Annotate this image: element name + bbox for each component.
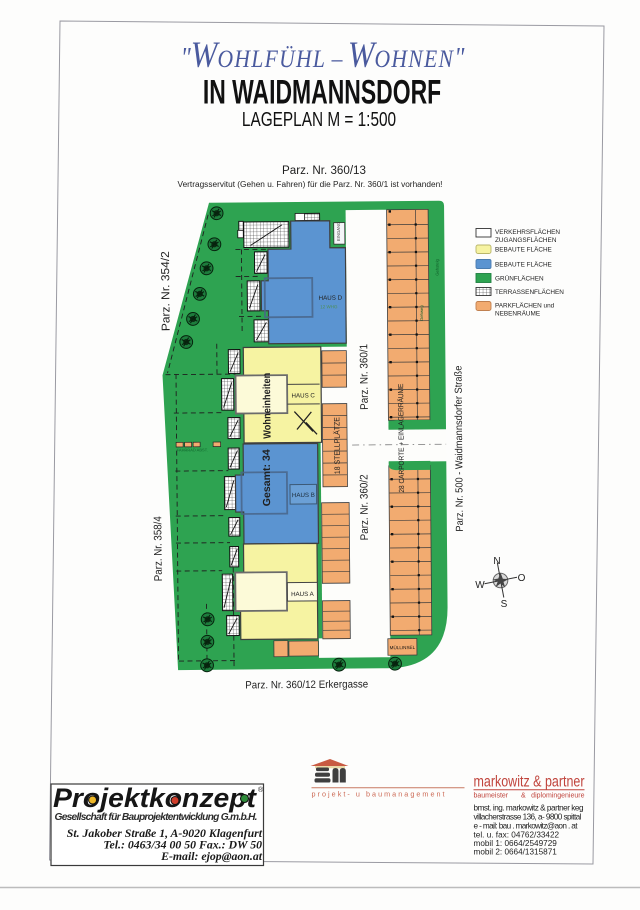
svg-text:12 WHG: 12 WHG bbox=[320, 304, 338, 309]
svg-text:Gehsteig: Gehsteig bbox=[435, 258, 440, 275]
svg-text:GRÜNFLÄCHEN: GRÜNFLÄCHEN bbox=[495, 274, 544, 282]
svg-text:N: N bbox=[493, 556, 500, 567]
svg-text:PARKFLÄCHEN und: PARKFLÄCHEN und bbox=[495, 301, 555, 309]
svg-text:bmst. ing. markowitz & partne: bmst. ing. markowitz & partner keg bbox=[474, 804, 584, 813]
svg-text:HAUS A: HAUS A bbox=[291, 591, 315, 598]
svg-text:LAGEPLAN M = 1:500: LAGEPLAN M = 1:500 bbox=[242, 108, 396, 131]
svg-text:Gesamt: 34: Gesamt: 34 bbox=[262, 449, 273, 506]
svg-text:Gehweg: Gehweg bbox=[419, 305, 424, 321]
svg-text:markowitz & partner: markowitz & partner bbox=[474, 774, 585, 791]
svg-text:28 CARPORTE + EINLAGERRÄUME: 28 CARPORTE + EINLAGERRÄUME bbox=[396, 384, 406, 493]
svg-text:&: & bbox=[521, 793, 526, 800]
svg-text:FAHRRAD ABST.: FAHRRAD ABST. bbox=[177, 447, 208, 452]
svg-text:Parz. Nr. 360/13: Parz. Nr. 360/13 bbox=[282, 165, 366, 177]
svg-text:W: W bbox=[475, 580, 485, 591]
svg-text:Parz. Nr. 358/4: Parz. Nr. 358/4 bbox=[152, 516, 165, 581]
svg-text:HAUS B: HAUS B bbox=[292, 492, 315, 499]
svg-text:IN WAIDMANNSDORF: IN WAIDMANNSDORF bbox=[203, 74, 441, 112]
svg-text:NEBENRÄUME: NEBENRÄUME bbox=[495, 309, 540, 317]
svg-text:VERKEHRSFLÄCHEN: VERKEHRSFLÄCHEN bbox=[495, 228, 560, 236]
svg-text:Parz. Nr. 500 - Waidmannsdorfe: Parz. Nr. 500 - Waidmannsdorfer Straße bbox=[453, 365, 465, 531]
svg-text:S: S bbox=[501, 599, 508, 610]
svg-text:Parz. Nr. 354/2: Parz. Nr. 354/2 bbox=[160, 251, 173, 331]
svg-text:EINGANG: EINGANG bbox=[336, 222, 341, 241]
svg-text:Parz. Nr. 360/2: Parz. Nr. 360/2 bbox=[358, 474, 371, 540]
svg-text:ZUGANGSFLÄCHEN: ZUGANGSFLÄCHEN bbox=[495, 236, 557, 244]
svg-text:HAUS D: HAUS D bbox=[319, 295, 343, 302]
svg-text:BEBAUTE FLÄCHE: BEBAUTE FLÄCHE bbox=[495, 246, 552, 254]
svg-text:baumeister: baumeister bbox=[474, 793, 509, 800]
svg-text:E-mail: ejop@aon.at: E-mail: ejop@aon.at bbox=[160, 849, 263, 863]
svg-text:Projektkonzept: Projektkonzept bbox=[53, 783, 257, 813]
svg-text:O: O bbox=[518, 573, 526, 584]
svg-text:projekt- u baumanagement: projekt- u baumanagement bbox=[312, 790, 447, 799]
svg-text:MÜLLINSEL: MÜLLINSEL bbox=[390, 644, 416, 650]
svg-text:e - mail: bau . markowitz@ao: e - mail: bau . markowitz@aon . at bbox=[474, 822, 579, 831]
svg-text:18 STELLPLÄTZE: 18 STELLPLÄTZE bbox=[332, 417, 341, 474]
svg-text:Parz. Nr. 360/1: Parz. Nr. 360/1 bbox=[358, 344, 371, 410]
svg-text:diplomingenieure: diplomingenieure bbox=[531, 793, 584, 800]
svg-text:Vertragsservitut (Gehen u. Fah: Vertragsservitut (Gehen u. Fahren) für d… bbox=[178, 180, 443, 189]
svg-text:mobil 2: 0664/1315871: mobil 2: 0664/1315871 bbox=[474, 848, 558, 857]
svg-text:TERRASSENFLÄCHEN: TERRASSENFLÄCHEN bbox=[495, 288, 564, 296]
svg-text:Wohneinheiten: Wohneinheiten bbox=[262, 373, 274, 439]
svg-text:Gesellschaft für Bauprojektent: Gesellschaft für Bauprojektentwicklung G… bbox=[55, 812, 258, 823]
svg-text:Parz. Nr. 360/12 Erkergasse: Parz. Nr. 360/12 Erkergasse bbox=[245, 678, 368, 691]
svg-text:®: ® bbox=[258, 786, 264, 794]
svg-text:BEBAUTE FLÄCHE: BEBAUTE FLÄCHE bbox=[495, 260, 552, 268]
svg-text:HAUS C: HAUS C bbox=[291, 392, 315, 399]
svg-text:villacherstrasse 136, a- 9800: villacherstrasse 136, a- 9800 spittal bbox=[474, 813, 582, 822]
